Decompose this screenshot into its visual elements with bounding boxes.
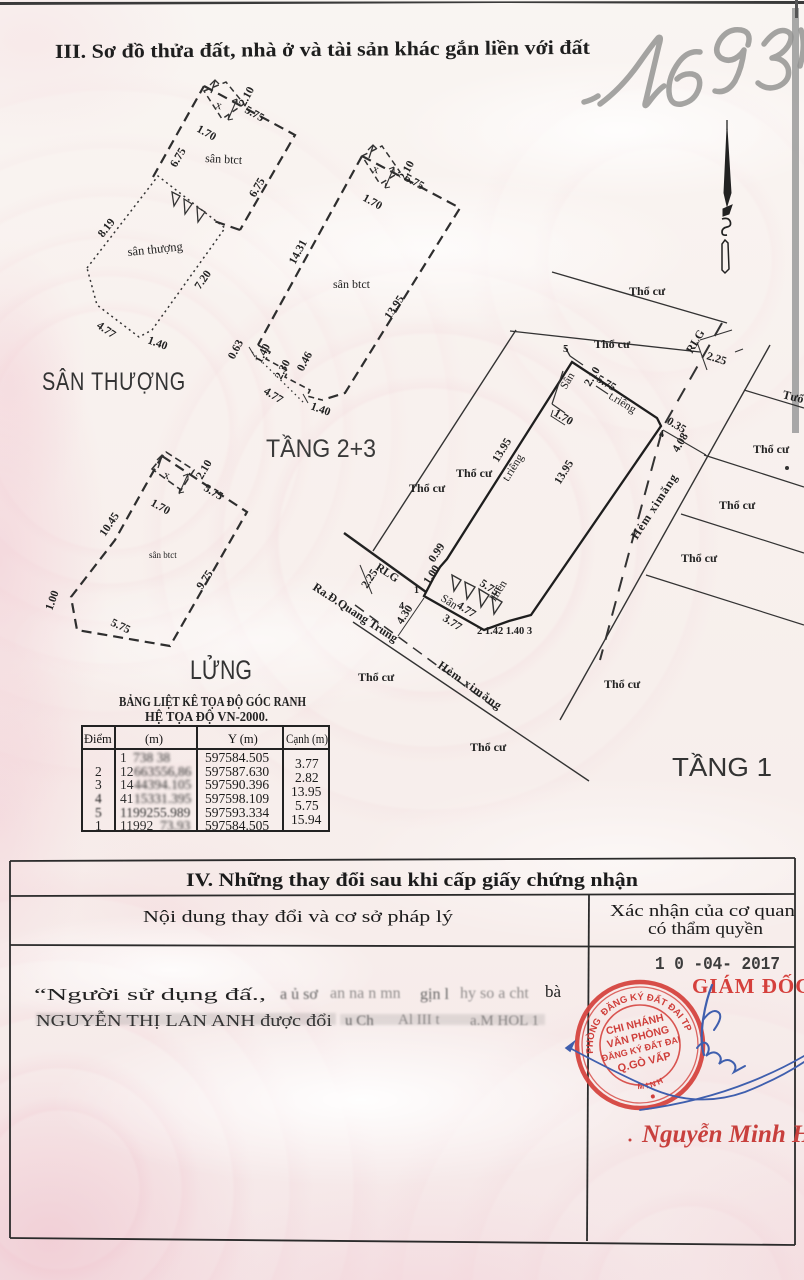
svg-text:1.40: 1.40 bbox=[253, 342, 273, 366]
svg-text:15331.395: 15331.395 bbox=[134, 791, 192, 806]
svg-text:Thổ cư: Thổ cư bbox=[409, 481, 446, 495]
svg-text:Hẻm ximăng: Hẻm ximăng bbox=[628, 471, 681, 542]
svg-text:13.95: 13.95 bbox=[552, 458, 576, 487]
svg-text:4: 4 bbox=[659, 429, 664, 440]
svg-text:597584.505: 597584.505 bbox=[205, 750, 269, 765]
svg-text:0.46: 0.46 bbox=[295, 350, 315, 374]
svg-text:HỆ TỌA ĐỘ VN-2000.: HỆ TỌA ĐỘ VN-2000. bbox=[145, 709, 268, 724]
svg-text:597584.505: 597584.505 bbox=[205, 818, 269, 833]
svg-text:sân btct: sân btct bbox=[149, 550, 177, 560]
svg-text:“Người sử dụng đấ.,: “Người sử dụng đấ., bbox=[34, 985, 266, 1004]
svg-text:gịn l: gịn l bbox=[420, 986, 449, 1003]
svg-text:1 0 -04- 2017: 1 0 -04- 2017 bbox=[655, 955, 780, 975]
svg-text:0.63: 0.63 bbox=[226, 338, 246, 362]
svg-text:sân btct: sân btct bbox=[333, 277, 371, 291]
svg-text:Thổ cư: Thổ cư bbox=[681, 551, 718, 565]
svg-text:9.75: 9.75 bbox=[195, 568, 216, 592]
svg-text:1.70: 1.70 bbox=[551, 407, 575, 428]
svg-text:x: x bbox=[162, 467, 171, 482]
svg-text:3: 3 bbox=[95, 777, 102, 792]
svg-text:Nguyễn Minh Hiếu: Nguyễn Minh Hiếu bbox=[641, 1121, 804, 1148]
svg-text:TẦNG 1: TẦNG 1 bbox=[672, 752, 772, 782]
svg-text:Hẻm ximăng: Hẻm ximăng bbox=[435, 658, 505, 713]
svg-text:1.70: 1.70 bbox=[195, 123, 219, 143]
svg-text:Sân: Sân bbox=[558, 370, 577, 391]
svg-text:Tưổ: Tưổ bbox=[781, 387, 804, 406]
svg-text:x: x bbox=[214, 97, 223, 112]
svg-text:(m): (m) bbox=[145, 732, 163, 746]
svg-text:1.40: 1.40 bbox=[309, 401, 332, 419]
svg-text:4.08: 4.08 bbox=[670, 431, 691, 455]
svg-text:có thẩm quyền: có thẩm quyền bbox=[648, 919, 763, 938]
svg-text:738 38: 738 38 bbox=[133, 750, 170, 765]
svg-text:7.20: 7.20 bbox=[193, 268, 215, 292]
svg-text:Nội dung thay đổi và cơ sở phá: Nội dung thay đổi và cơ sở pháp lý bbox=[143, 907, 454, 926]
svg-text:1: 1 bbox=[414, 585, 419, 596]
svg-text:Thổ cư: Thổ cư bbox=[753, 442, 790, 456]
svg-text:4.77: 4.77 bbox=[94, 320, 118, 342]
svg-text:4: 4 bbox=[399, 601, 404, 612]
svg-text:sân btct: sân btct bbox=[205, 151, 243, 167]
svg-text:Thổ cư: Thổ cư bbox=[719, 498, 756, 512]
svg-text:RLG: RLG bbox=[684, 328, 707, 356]
svg-text:2.10: 2.10 bbox=[194, 458, 215, 482]
svg-text:5.75: 5.75 bbox=[109, 617, 133, 636]
svg-text:14: 14 bbox=[120, 777, 134, 792]
svg-text:597598.109: 597598.109 bbox=[205, 791, 269, 806]
svg-text:73.93: 73.93 bbox=[160, 818, 191, 833]
svg-text:1: 1 bbox=[120, 750, 127, 765]
svg-text:1.00: 1.00 bbox=[44, 589, 62, 612]
svg-text:2 1.42 1.40 3: 2 1.42 1.40 3 bbox=[477, 626, 532, 637]
svg-text:hy so a cht: hy so a cht bbox=[460, 985, 529, 1002]
svg-text:4.77: 4.77 bbox=[261, 385, 285, 406]
svg-text:10.45: 10.45 bbox=[98, 510, 123, 538]
svg-text:44394.105: 44394.105 bbox=[134, 777, 192, 792]
svg-text:sân thượng: sân thượng bbox=[127, 239, 184, 259]
svg-text:1.70: 1.70 bbox=[149, 497, 173, 517]
svg-text:Ra.Đ.Quang Trung: Ra.Đ.Quang Trung bbox=[310, 580, 400, 645]
svg-text:BẢNG LIỆT KÊ TỌA ĐỘ GÓC RANH: BẢNG LIỆT KÊ TỌA ĐỘ GÓC RANH bbox=[119, 694, 306, 709]
svg-text:III. Sơ đồ thửa đất, nhà ở và: III. Sơ đồ thửa đất, nhà ở và tài sản kh… bbox=[55, 37, 591, 63]
svg-text:IV. Những thay đổi sau khi cấp: IV. Những thay đổi sau khi cấp giấy chứn… bbox=[186, 870, 639, 891]
svg-text:bà: bà bbox=[545, 982, 562, 1001]
svg-text:x: x bbox=[371, 161, 380, 176]
svg-text:15.94: 15.94 bbox=[291, 812, 322, 827]
svg-text:5.75: 5.75 bbox=[201, 482, 225, 503]
svg-text:LỬNG: LỬNG bbox=[190, 653, 252, 685]
svg-text:1: 1 bbox=[95, 818, 102, 833]
svg-text:5.75: 5.75 bbox=[295, 798, 319, 813]
svg-text:Thổ cư: Thổ cư bbox=[470, 740, 507, 754]
svg-text:2.10: 2.10 bbox=[237, 85, 257, 109]
svg-text:Thổ cư: Thổ cư bbox=[594, 337, 631, 351]
svg-text:2.82: 2.82 bbox=[295, 770, 319, 785]
svg-text:6.75: 6.75 bbox=[168, 146, 189, 170]
svg-text:Xác nhận của cơ quan: Xác nhận của cơ quan bbox=[610, 901, 795, 920]
svg-text:3.77: 3.77 bbox=[295, 756, 319, 771]
svg-text:597590.396: 597590.396 bbox=[205, 777, 269, 792]
svg-text:Thổ cư: Thổ cư bbox=[604, 677, 641, 691]
svg-text:11992: 11992 bbox=[120, 818, 153, 833]
svg-text:Thổ cư: Thổ cư bbox=[456, 466, 493, 480]
svg-text:Thổ cư: Thổ cư bbox=[629, 284, 666, 298]
svg-text:1.40: 1.40 bbox=[146, 335, 169, 353]
svg-text:8.19: 8.19 bbox=[96, 216, 118, 239]
svg-text:SÂN THƯỢNG: SÂN THƯỢNG bbox=[42, 367, 186, 396]
svg-text:Y (m): Y (m) bbox=[228, 732, 258, 746]
svg-text:14.31: 14.31 bbox=[287, 238, 310, 267]
svg-text:an na n mn: an na n mn bbox=[330, 985, 401, 1002]
svg-text:Cạnh (m): Cạnh (m) bbox=[286, 732, 328, 746]
svg-text:Điểm: Điểm bbox=[84, 732, 112, 746]
svg-text:41: 41 bbox=[120, 791, 134, 806]
svg-text:2.30: 2.30 bbox=[273, 358, 293, 382]
svg-text:1.70: 1.70 bbox=[361, 192, 385, 212]
svg-text:Thổ cư: Thổ cư bbox=[358, 670, 395, 684]
svg-text:TẦNG 2+3: TẦNG 2+3 bbox=[266, 434, 376, 463]
svg-text:13.95: 13.95 bbox=[291, 784, 322, 799]
svg-text:a ủ sơ: a ủ sơ bbox=[280, 986, 318, 1003]
svg-text:2.25: 2.25 bbox=[705, 350, 728, 367]
svg-text:4.77: 4.77 bbox=[454, 599, 478, 620]
svg-text:5: 5 bbox=[563, 343, 569, 355]
svg-text:4: 4 bbox=[95, 791, 102, 806]
